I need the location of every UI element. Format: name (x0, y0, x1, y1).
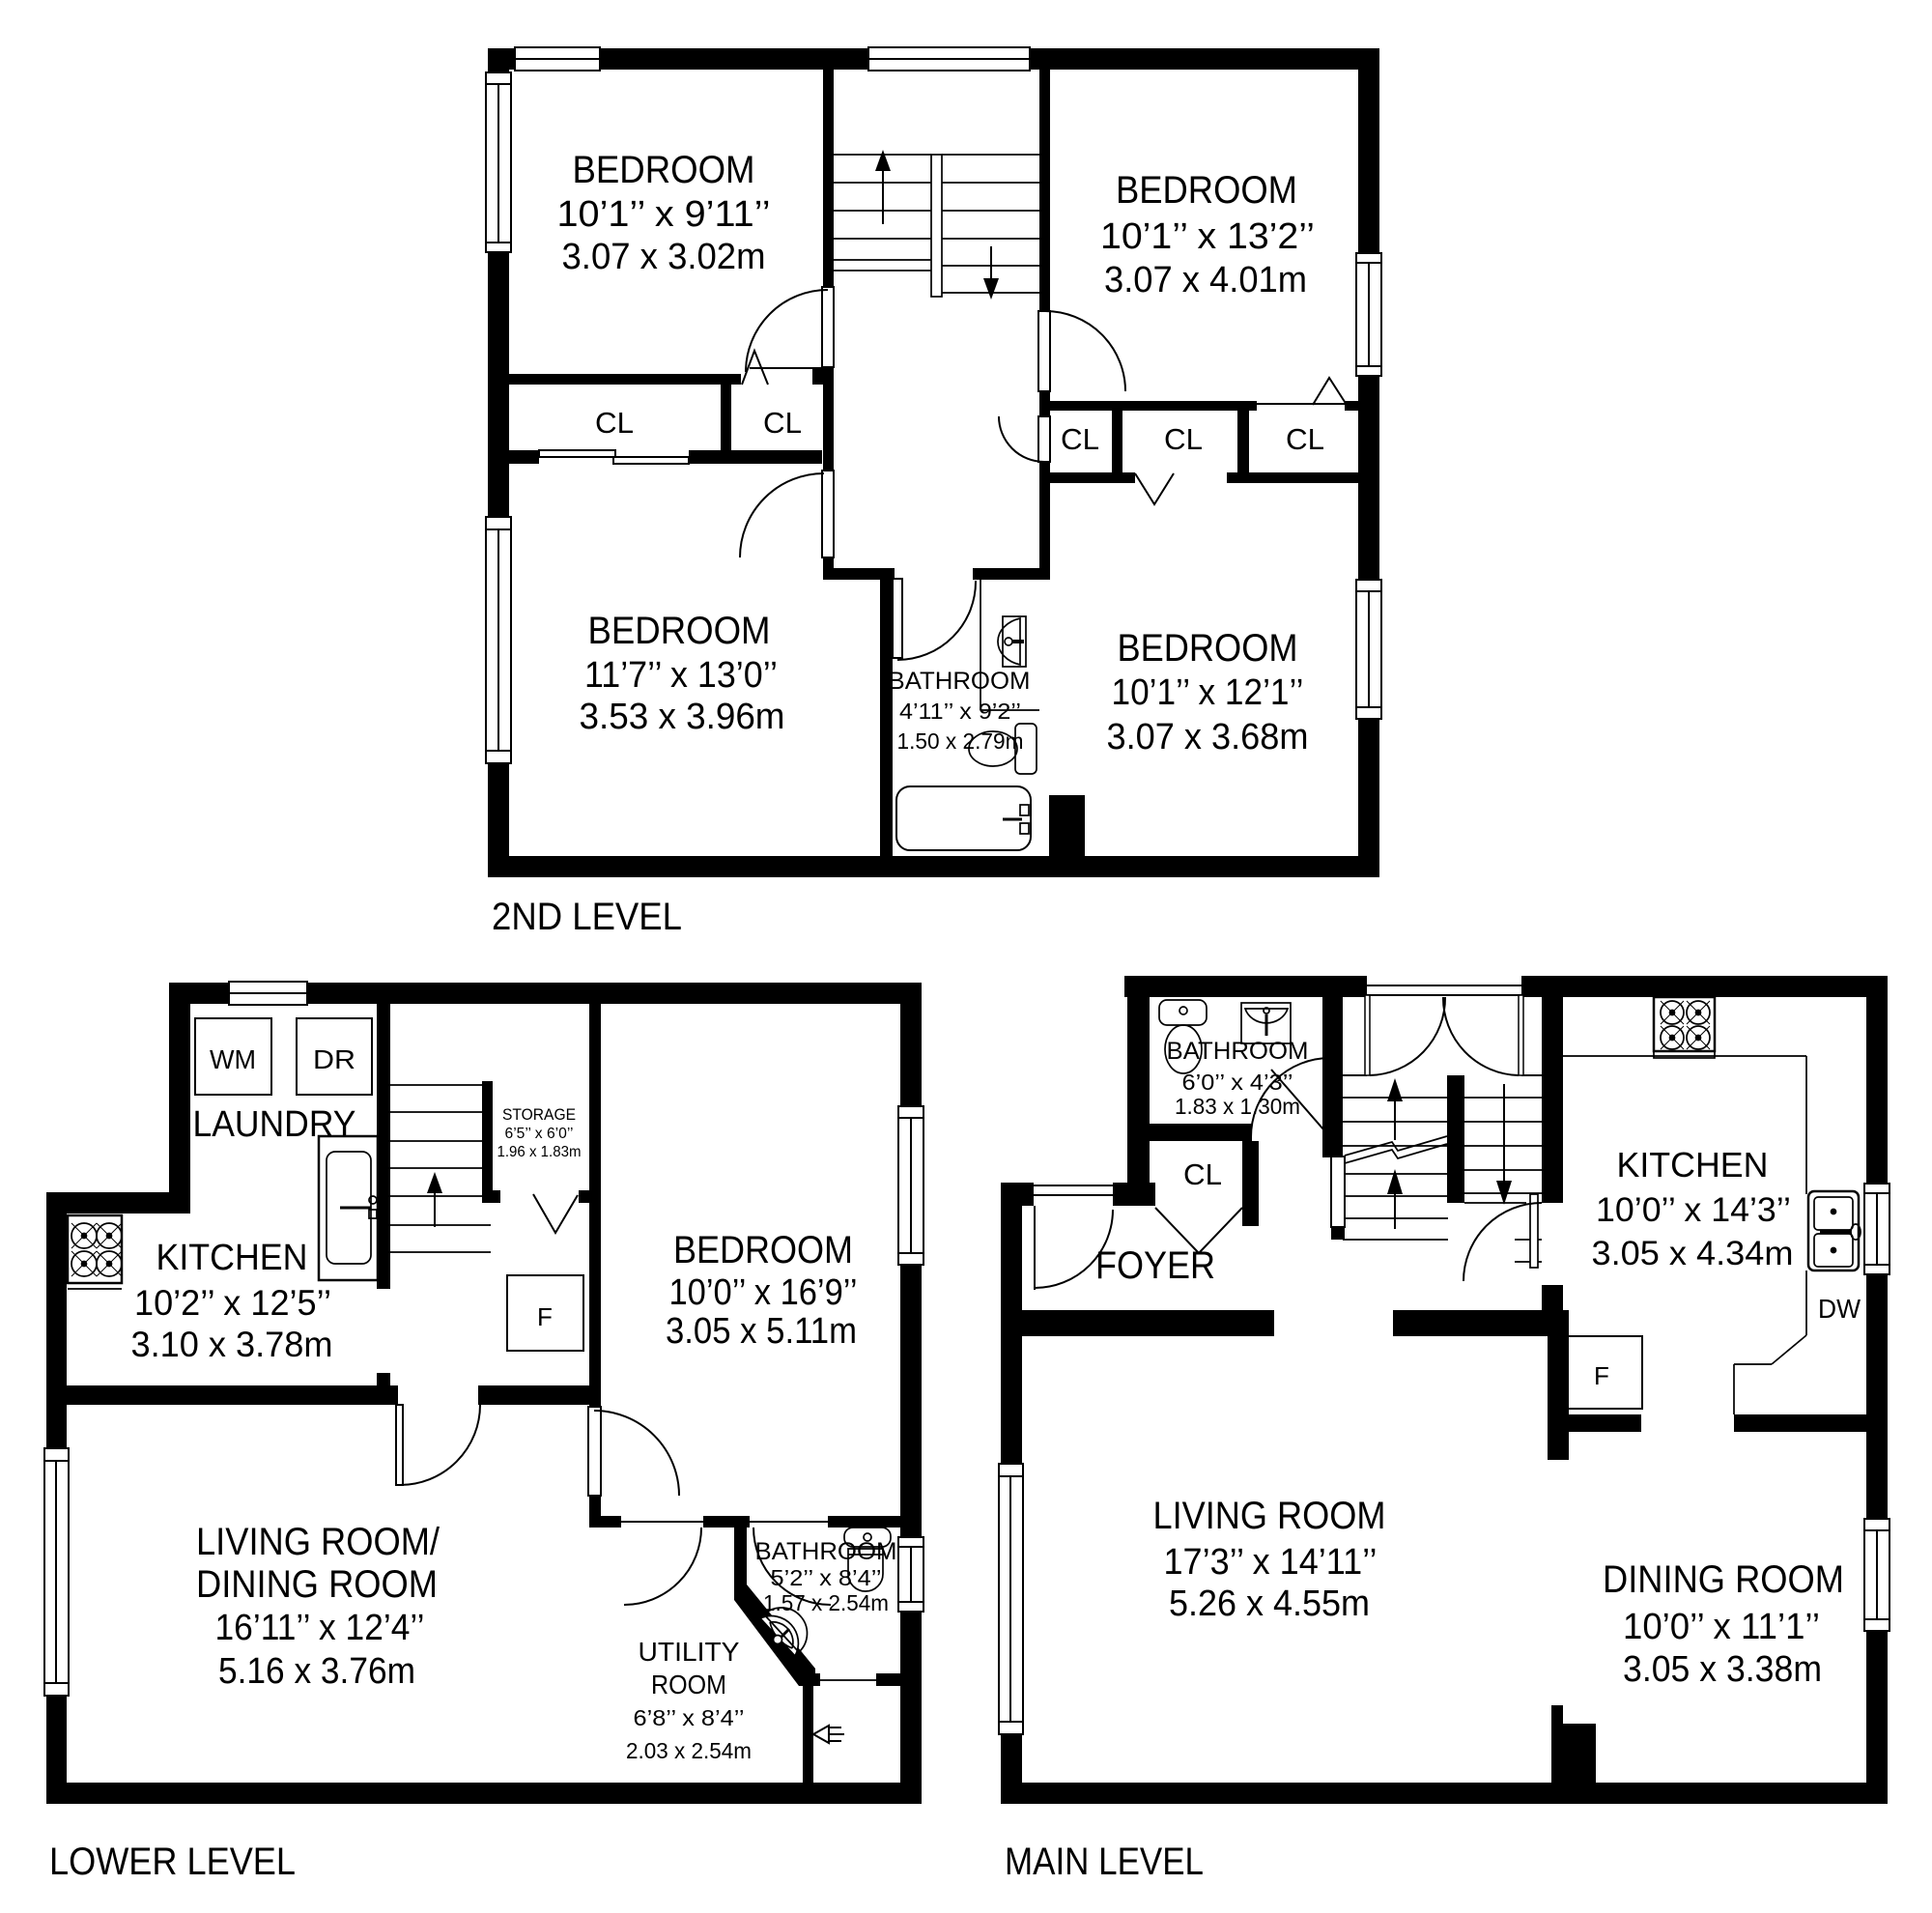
svg-text:10’0’’ x 14’3’’: 10’0’’ x 14’3’’ (1596, 1191, 1791, 1229)
svg-text:KITCHEN: KITCHEN (1617, 1145, 1769, 1185)
svg-text:2ND LEVEL: 2ND LEVEL (492, 896, 682, 938)
svg-text:6’5’’ x 6’0’’: 6’5’’ x 6’0’’ (505, 1126, 574, 1142)
svg-text:FOYER: FOYER (1095, 1244, 1215, 1287)
svg-text:CL: CL (1164, 422, 1203, 456)
svg-text:CL: CL (1286, 422, 1324, 456)
svg-text:3.07 x 4.01m: 3.07 x 4.01m (1104, 260, 1307, 300)
svg-text:3.10 x 3.78m: 3.10 x 3.78m (131, 1325, 333, 1364)
svg-text:LIVING ROOM: LIVING ROOM (1153, 1495, 1386, 1537)
svg-text:10’0’’ x 11’1’’: 10’0’’ x 11’1’’ (1623, 1607, 1820, 1647)
svg-text:3.05 x 4.34m: 3.05 x 4.34m (1592, 1235, 1794, 1272)
svg-text:4’11’’ x 9’2’’: 4’11’’ x 9’2’’ (899, 699, 1021, 724)
svg-text:10’1’’ x 12’1’’: 10’1’’ x 12’1’’ (1112, 672, 1304, 713)
svg-text:6’8’’ x 8’4’’: 6’8’’ x 8’4’’ (634, 1705, 745, 1730)
svg-text:10’1’’ x 9’11’’: 10’1’’ x 9’11’’ (557, 194, 771, 235)
svg-text:MAIN LEVEL: MAIN LEVEL (1005, 1841, 1204, 1883)
svg-text:3.05 x 5.11m: 3.05 x 5.11m (666, 1311, 857, 1352)
svg-text:16’11’’ x 12’4’’: 16’11’’ x 12’4’’ (215, 1608, 425, 1648)
svg-text:1.57 x 2.54m: 1.57 x 2.54m (763, 1590, 889, 1615)
svg-text:CL: CL (1183, 1157, 1222, 1191)
svg-text:6’0’’ x 4’3’’: 6’0’’ x 4’3’’ (1182, 1070, 1293, 1095)
svg-text:BEDROOM: BEDROOM (1116, 169, 1297, 212)
svg-text:10’2’’ x 12’5’’: 10’2’’ x 12’5’’ (134, 1283, 331, 1323)
svg-text:5.16 x 3.76m: 5.16 x 3.76m (218, 1651, 415, 1692)
svg-text:3.07 x 3.68m: 3.07 x 3.68m (1107, 717, 1309, 757)
svg-text:LIVING ROOM/: LIVING ROOM/ (196, 1521, 440, 1563)
svg-text:1.83 x 1.30m: 1.83 x 1.30m (1175, 1094, 1300, 1119)
svg-text:BEDROOM: BEDROOM (588, 610, 771, 652)
svg-text:3.07 x 3.02m: 3.07 x 3.02m (562, 237, 766, 277)
svg-text:11’7’’ x 13’0’’: 11’7’’ x 13’0’’ (584, 655, 778, 696)
svg-text:WM: WM (210, 1044, 256, 1074)
svg-text:LAUNDRY: LAUNDRY (193, 1104, 356, 1145)
svg-text:BATHROOM: BATHROOM (1167, 1038, 1309, 1065)
svg-text:5’2’’ x 8’4’’: 5’2’’ x 8’4’’ (771, 1565, 882, 1590)
svg-text:UTILITY: UTILITY (639, 1637, 740, 1667)
svg-text:F: F (537, 1302, 553, 1331)
svg-text:2.03 x 2.54m: 2.03 x 2.54m (626, 1738, 752, 1763)
svg-text:CL: CL (595, 406, 634, 440)
svg-text:17’3’’ x 14’11’’: 17’3’’ x 14’11’’ (1164, 1542, 1378, 1583)
svg-text:10’1’’ x 13’2’’: 10’1’’ x 13’2’’ (1100, 216, 1315, 257)
svg-text:1.50 x 2.79m: 1.50 x 2.79m (897, 728, 1024, 754)
svg-text:KITCHEN: KITCHEN (156, 1238, 308, 1278)
svg-text:DW: DW (1818, 1294, 1861, 1324)
svg-text:BEDROOM: BEDROOM (1118, 627, 1298, 670)
svg-text:BEDROOM: BEDROOM (573, 149, 755, 191)
svg-text:CL: CL (1061, 422, 1099, 456)
svg-text:DINING ROOM: DINING ROOM (196, 1563, 438, 1606)
svg-text:LOWER LEVEL: LOWER LEVEL (49, 1841, 296, 1883)
svg-text:5.26 x 4.55m: 5.26 x 4.55m (1169, 1584, 1370, 1624)
svg-text:F: F (1594, 1361, 1609, 1390)
svg-text:STORAGE: STORAGE (502, 1105, 576, 1124)
svg-text:DINING ROOM: DINING ROOM (1603, 1558, 1844, 1601)
svg-text:3.05 x 3.38m: 3.05 x 3.38m (1623, 1649, 1822, 1690)
svg-text:10’0’’ x 16’9’’: 10’0’’ x 16’9’’ (669, 1272, 858, 1313)
svg-text:BEDROOM: BEDROOM (673, 1229, 853, 1271)
svg-text:ROOM: ROOM (651, 1670, 726, 1699)
svg-text:CL: CL (763, 406, 802, 440)
svg-text:DR: DR (313, 1044, 355, 1074)
svg-text:BATHROOM: BATHROOM (889, 668, 1031, 695)
svg-text:3.53 x 3.96m: 3.53 x 3.96m (580, 697, 785, 737)
svg-text:BATHROOM: BATHROOM (755, 1538, 897, 1565)
svg-text:1.96 x 1.83m: 1.96 x 1.83m (497, 1144, 582, 1160)
